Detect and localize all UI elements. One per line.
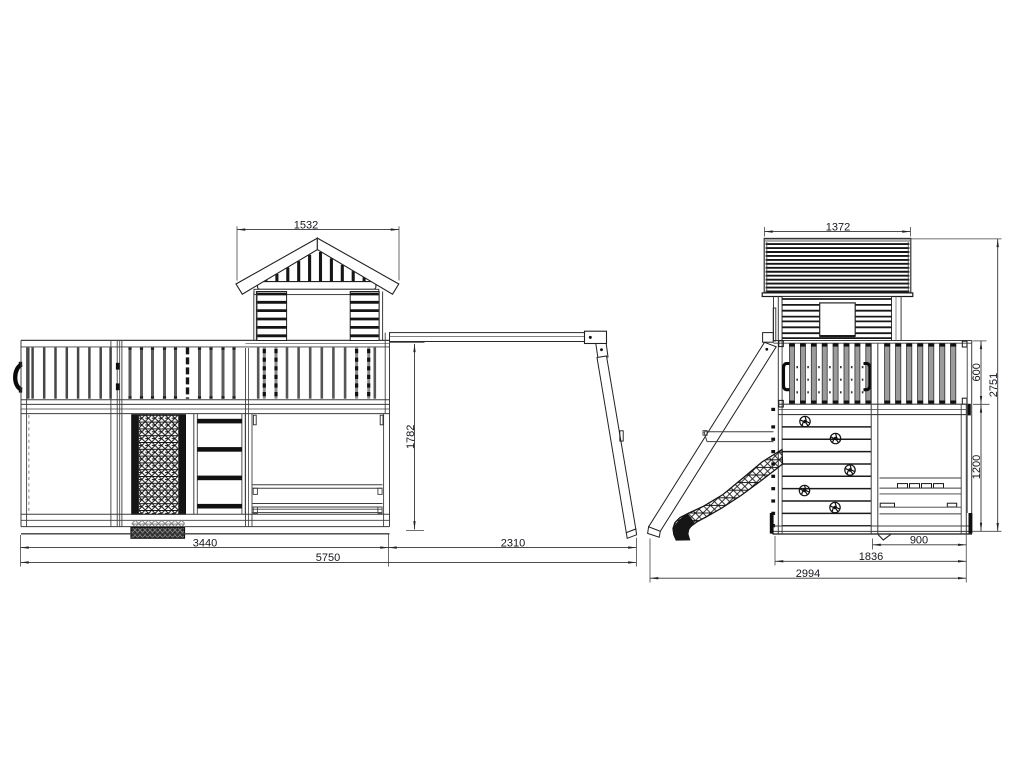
svg-text:1372: 1372 (826, 221, 850, 233)
svg-text:2994: 2994 (796, 568, 820, 580)
svg-text:1200: 1200 (971, 455, 983, 479)
svg-text:1782: 1782 (405, 425, 417, 449)
svg-text:1836: 1836 (859, 551, 883, 563)
svg-text:2310: 2310 (501, 537, 525, 549)
svg-text:3440: 3440 (193, 537, 217, 549)
svg-text:2751: 2751 (988, 373, 1000, 397)
svg-text:5750: 5750 (316, 552, 340, 564)
svg-text:600: 600 (971, 363, 983, 381)
svg-text:900: 900 (910, 535, 928, 547)
svg-text:1532: 1532 (294, 220, 318, 232)
